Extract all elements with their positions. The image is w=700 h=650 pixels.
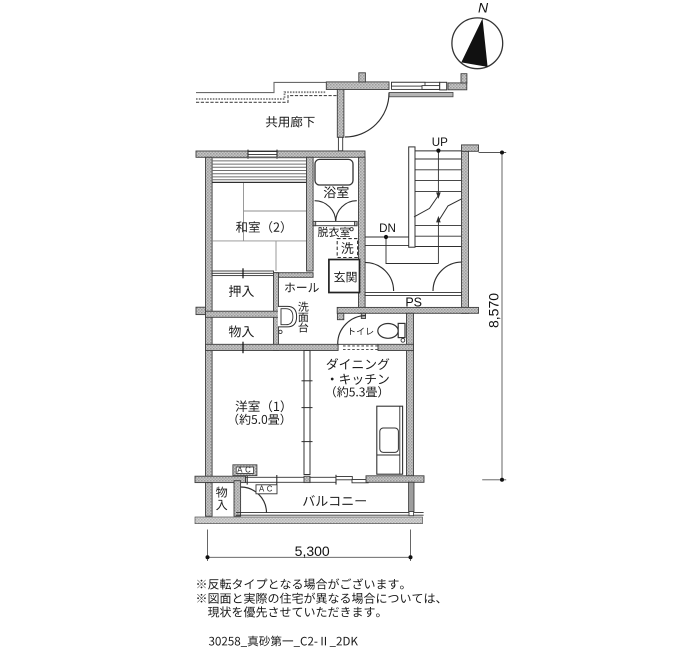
svg-text:N: N: [478, 0, 489, 16]
svg-text:AC: AC: [237, 465, 253, 474]
svg-text:AC: AC: [259, 485, 275, 494]
svg-text:DN: DN: [379, 222, 396, 235]
svg-text:8,570: 8,570: [486, 293, 502, 328]
svg-text:UP: UP: [432, 136, 448, 149]
svg-text:5,300: 5,300: [295, 543, 330, 559]
